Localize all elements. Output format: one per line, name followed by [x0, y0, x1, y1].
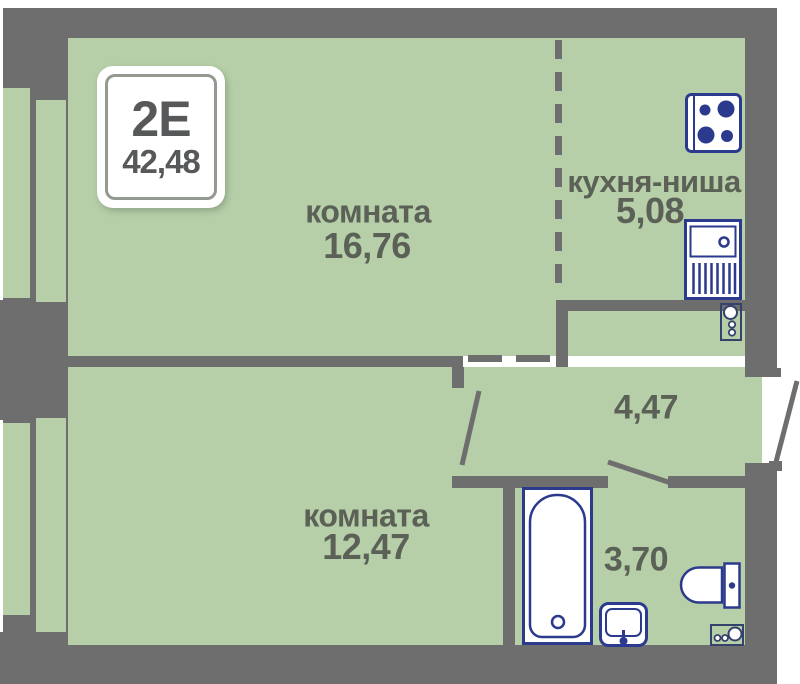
room1-area: 16,76	[323, 225, 411, 267]
wall-stub-room2-door	[452, 367, 464, 388]
balcony-strip	[36, 100, 66, 302]
hallway-area: 4,47	[614, 389, 678, 428]
plan-edge-gap	[0, 8, 3, 98]
wall-right-upper	[745, 38, 777, 377]
utility-meter-icon-kitchen	[720, 303, 742, 341]
wall-bathroom-top-right	[668, 476, 745, 488]
door-frame-entrance-bottom	[769, 461, 782, 471]
apartment-badge-border: 2Е 42,48	[105, 74, 217, 200]
apartment-badge: 2Е 42,48	[97, 66, 225, 208]
apartment-total-area: 42,48	[122, 145, 200, 180]
room2-area: 12,47	[322, 526, 410, 568]
wall-top	[3, 8, 777, 38]
wall-between-rooms	[63, 356, 463, 367]
door-entrance	[775, 381, 797, 466]
washbasin-icon	[599, 602, 648, 647]
kitchen-sink-icon	[684, 219, 742, 300]
wall-bathroom-left	[503, 476, 515, 645]
utility-meter-icon-bathroom	[710, 624, 744, 646]
floor-plan: 2Е 42,48 комната 16,76 кухня-ниша 5,08 4…	[0, 0, 800, 684]
bathtub-icon	[522, 487, 593, 645]
kitchen-niche-dashed-line-vertical	[555, 40, 562, 296]
bathroom-area: 3,70	[604, 541, 668, 580]
wall-right-lower	[745, 463, 777, 645]
floor-entrance-threshold	[745, 377, 762, 463]
stove-icon	[685, 93, 742, 153]
apartment-type-label: 2Е	[131, 94, 190, 145]
balcony-strip	[3, 423, 30, 615]
toilet-icon	[678, 562, 741, 609]
door-frame-entrance-top	[768, 368, 781, 377]
kitchen-niche-dashed-line-horizontal	[468, 355, 554, 362]
balcony-strip	[3, 88, 30, 298]
kitchen-area: 5,08	[616, 190, 684, 232]
wall-bottom	[0, 645, 777, 684]
wall-kitchen-bottom	[556, 300, 745, 311]
balcony-strip	[36, 418, 66, 632]
